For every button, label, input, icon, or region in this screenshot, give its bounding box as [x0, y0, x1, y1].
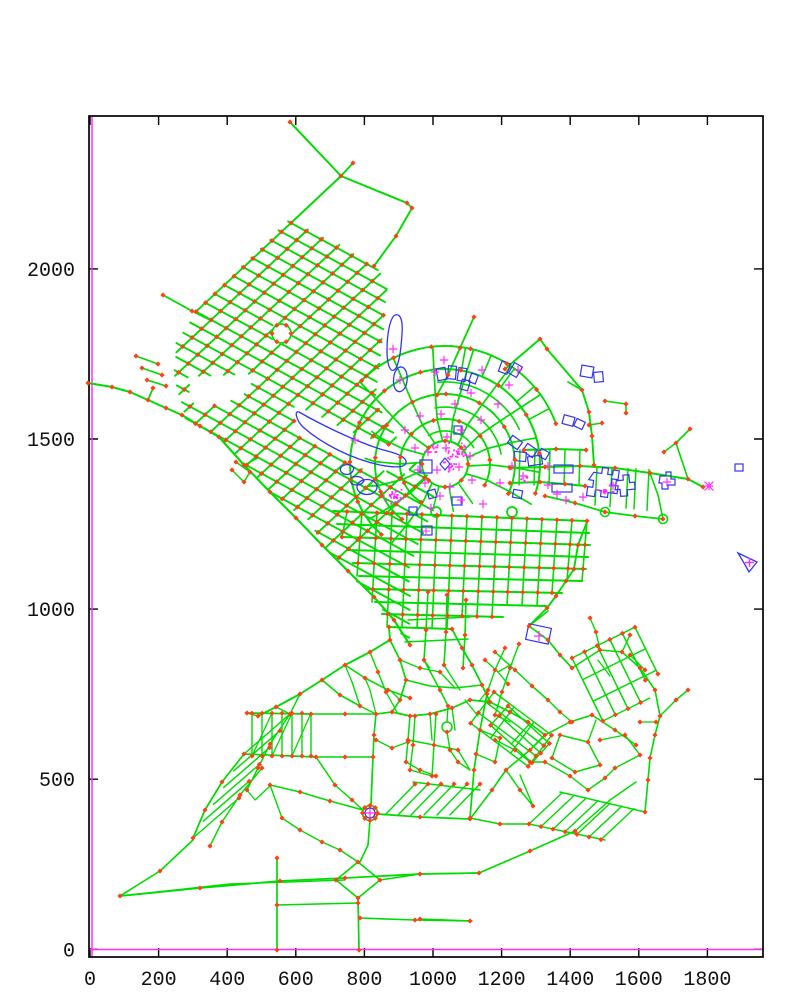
svg-text:1400: 1400	[546, 969, 594, 992]
svg-text:600: 600	[278, 969, 314, 992]
svg-text:1500: 1500	[27, 430, 75, 453]
svg-text:1200: 1200	[478, 969, 526, 992]
svg-text:500: 500	[39, 770, 75, 793]
svg-text:1000: 1000	[27, 600, 75, 623]
svg-text:1600: 1600	[615, 969, 663, 992]
svg-text:1800: 1800	[683, 969, 731, 992]
svg-text:400: 400	[209, 969, 245, 992]
svg-text:2000: 2000	[27, 260, 75, 283]
svg-text:0: 0	[63, 940, 75, 963]
svg-text:200: 200	[141, 969, 177, 992]
svg-text:1000: 1000	[409, 969, 457, 992]
svg-text:800: 800	[346, 969, 382, 992]
svg-text:0: 0	[84, 969, 96, 992]
